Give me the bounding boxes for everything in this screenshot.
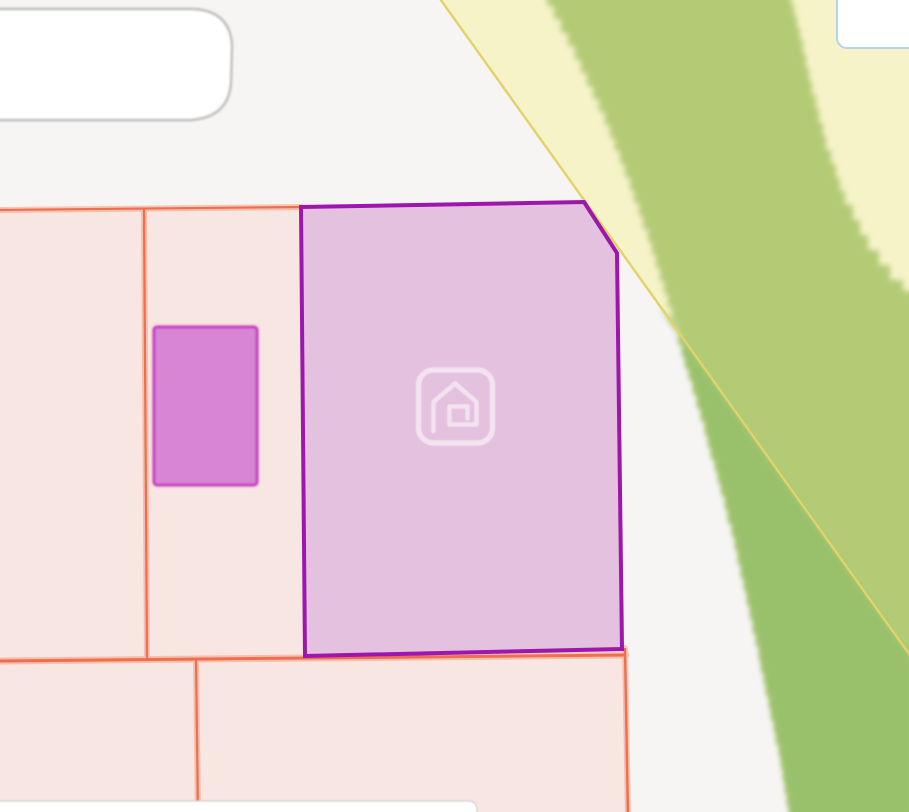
selected-parcel[interactable] xyxy=(301,202,622,656)
map-svg[interactable] xyxy=(0,0,909,812)
building-footprint-magenta[interactable] xyxy=(154,327,257,485)
map-ui-card[interactable] xyxy=(837,0,909,48)
parcel-block-lower[interactable] xyxy=(0,655,628,812)
building-footprint-top-left[interactable] xyxy=(0,9,232,120)
map-canvas[interactable] xyxy=(0,0,909,812)
building-footprint-bottom[interactable] xyxy=(0,801,477,812)
